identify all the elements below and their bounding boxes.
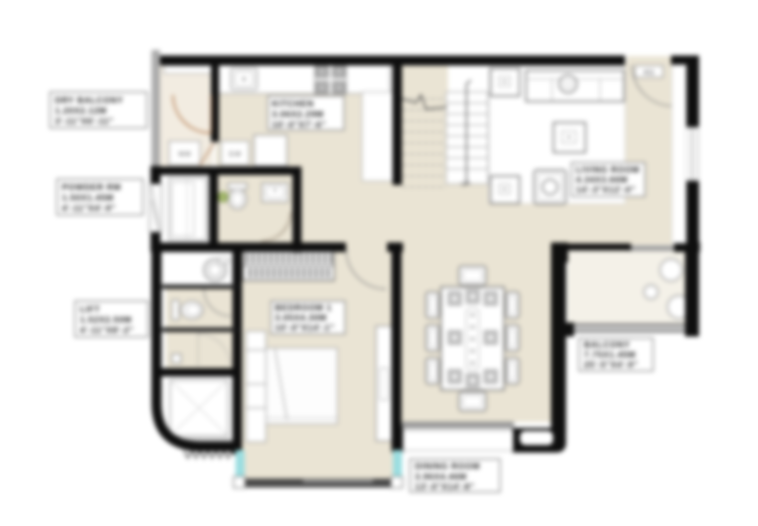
svg-text:D.W: D.W [229,152,241,158]
svg-text:LIVING ROOM: LIVING ROOM [576,165,640,175]
svg-text:4.34X3.66M: 4.34X3.66M [576,175,628,185]
svg-text:1.52X2.50M: 1.52X2.50M [80,315,132,325]
svg-text:13'-0"X14'-8": 13'-0"X14'-8" [415,482,475,492]
svg-text:3'-11"X6'-11": 3'-11"X6'-11" [55,116,114,126]
svg-text:DINING ROOM: DINING ROOM [415,461,480,471]
svg-text:1.20X2.12M: 1.20X2.12M [55,106,107,116]
svg-text:25'-5"X4'-9": 25'-5"X4'-9" [584,360,638,370]
svg-text:UP: UP [461,181,470,188]
svg-text:BALCONY: BALCONY [584,340,630,350]
svg-text:1.50X1.45M: 1.50X1.45M [62,193,114,203]
svg-text:7.75X1.45M: 7.75X1.45M [584,350,636,360]
svg-text:DRY BALCONY: DRY BALCONY [55,95,123,105]
svg-text:3.06X2.29M: 3.06X2.29M [272,109,324,119]
svg-text:LIFT: LIFT [80,304,101,314]
svg-text:3.96X4.46M: 3.96X4.46M [415,472,467,482]
svg-text:KITCHEN: KITCHEN [272,99,314,109]
svg-text:4'-11"X8'-2": 4'-11"X8'-2" [80,325,134,335]
svg-text:10'-0"X7'-6": 10'-0"X7'-6" [272,120,326,130]
svg-text:BEDROOM 1: BEDROOM 1 [275,303,332,313]
svg-text:W.M: W.M [179,152,191,158]
svg-text:411: 411 [643,70,654,77]
svg-text:14'-3"X12'-0": 14'-3"X12'-0" [576,185,636,195]
svg-text:POWDER RM: POWDER RM [62,182,121,192]
svg-text:4'-11"X4'-9": 4'-11"X4'-9" [62,203,116,213]
svg-text:10'-0"X14'-1": 10'-0"X14'-1" [275,323,335,333]
svg-text:3.05X4.30M: 3.05X4.30M [275,313,327,323]
